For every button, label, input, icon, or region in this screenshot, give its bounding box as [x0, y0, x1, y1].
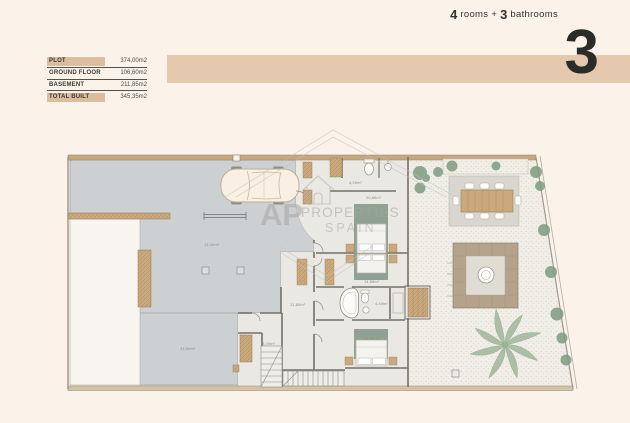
plot-wall-bottom — [68, 386, 573, 391]
rooms-bathrooms-text: 4 rooms + 3 bathrooms — [450, 0, 558, 28]
room-area-label: 13,40m² — [204, 243, 220, 247]
room-area-label: 33,60m² — [180, 347, 196, 351]
spec-label: BASEMENT — [47, 80, 105, 89]
stairs-exterior — [283, 371, 344, 386]
spec-row-basement: BASEMENT 211,85m2 — [47, 80, 147, 92]
outdoor-dining — [449, 176, 521, 226]
spec-label: PLOT — [47, 57, 105, 66]
plus-sign: + — [491, 9, 497, 20]
spec-table: PLOT 374,00m2 GROUND FLOOR 106,60m2 BASE… — [47, 56, 147, 103]
floor-plan-number: 3 — [565, 22, 599, 84]
column — [237, 267, 244, 274]
watermark-brand-sub: SPAIN — [325, 221, 377, 235]
spec-value: 211,85m2 — [105, 82, 147, 88]
column — [452, 370, 459, 377]
dining-table — [461, 190, 513, 212]
room-area-label: 4,50m² — [349, 181, 363, 185]
rooms-count: 4 — [450, 7, 457, 22]
watermark-brand-rest: PROPERTIES — [301, 205, 400, 220]
closet — [240, 335, 252, 362]
room-area-label: 14,80m² — [364, 280, 380, 284]
garden-wall — [138, 250, 151, 307]
room-area-label: 14,80m² — [364, 337, 380, 341]
fire-pit — [447, 243, 518, 308]
side-terrace-area — [70, 219, 140, 385]
spec-label: TOTAL BUILT — [47, 93, 105, 102]
spec-value: 374,00m2 — [105, 58, 147, 64]
spec-value: 345,35m2 — [105, 94, 147, 100]
room-area-label: 6,00m² — [262, 342, 276, 346]
stairs-interior — [261, 346, 282, 387]
watermark-brand-prefix: AP — [260, 197, 303, 232]
spec-row-ground-floor: GROUND FLOOR 106,60m2 — [47, 68, 147, 80]
bathrooms-word: bathrooms — [510, 9, 558, 20]
spec-row-total-built: TOTAL BUILT 345,35m2 — [47, 91, 147, 103]
spec-label: GROUND FLOOR — [47, 69, 105, 78]
spec-value: 106,60m2 — [105, 70, 147, 76]
room-area-label: 20,60m² — [366, 196, 382, 200]
room-area-label: 4,40m² — [375, 302, 389, 306]
header-banner — [167, 55, 630, 83]
column — [202, 267, 209, 274]
room-area-label: 11,80m² — [290, 303, 306, 307]
garden-wall — [68, 213, 170, 219]
rooms-word: rooms — [460, 9, 488, 20]
spec-row-plot: PLOT 374,00m2 — [47, 56, 147, 68]
bathrooms-count: 3 — [500, 7, 507, 22]
